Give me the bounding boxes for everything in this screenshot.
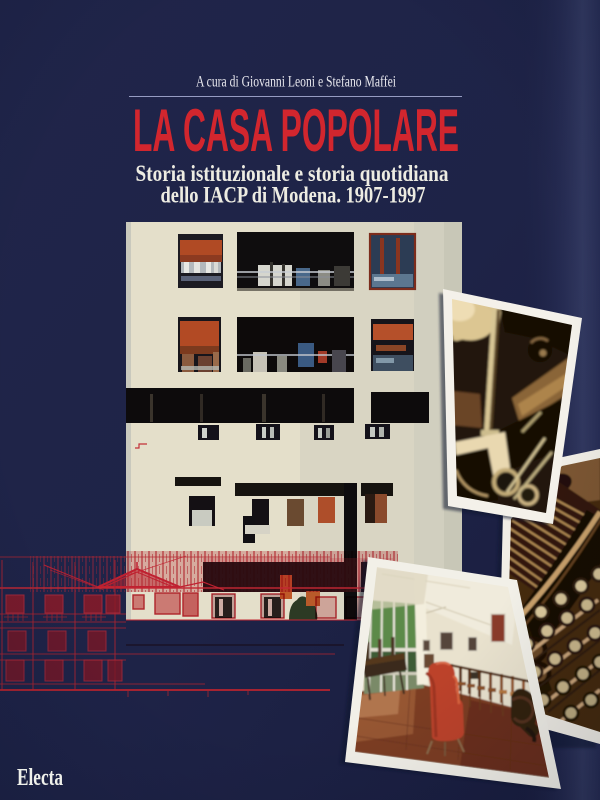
svg-text:A cura di Giovanni Leoni e Ste: A cura di Giovanni Leoni e Stefano Maffe…: [196, 74, 397, 91]
svg-text:LA CASA POPOLARE: LA CASA POPOLARE: [133, 97, 459, 164]
svg-text:dello IACP di Modena. 1907-199: dello IACP di Modena. 1907-1997: [161, 183, 426, 209]
svg-text:Electa: Electa: [17, 765, 63, 791]
